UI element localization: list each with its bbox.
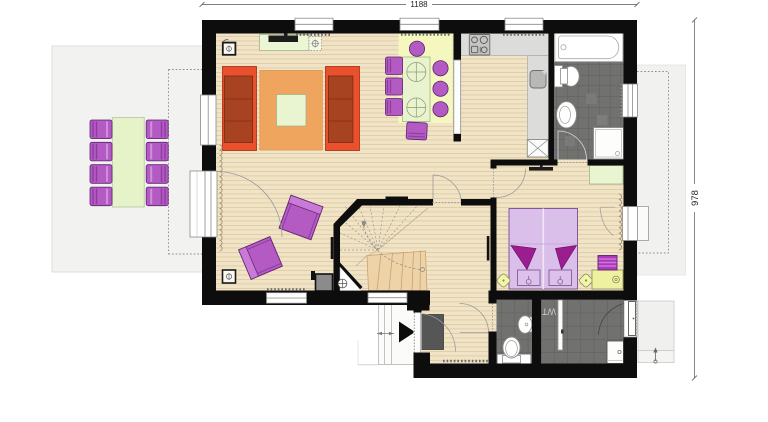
svg-text:1188: 1188 (410, 0, 428, 9)
svg-text:978: 978 (690, 190, 701, 206)
svg-text:WT: WT (542, 306, 556, 316)
